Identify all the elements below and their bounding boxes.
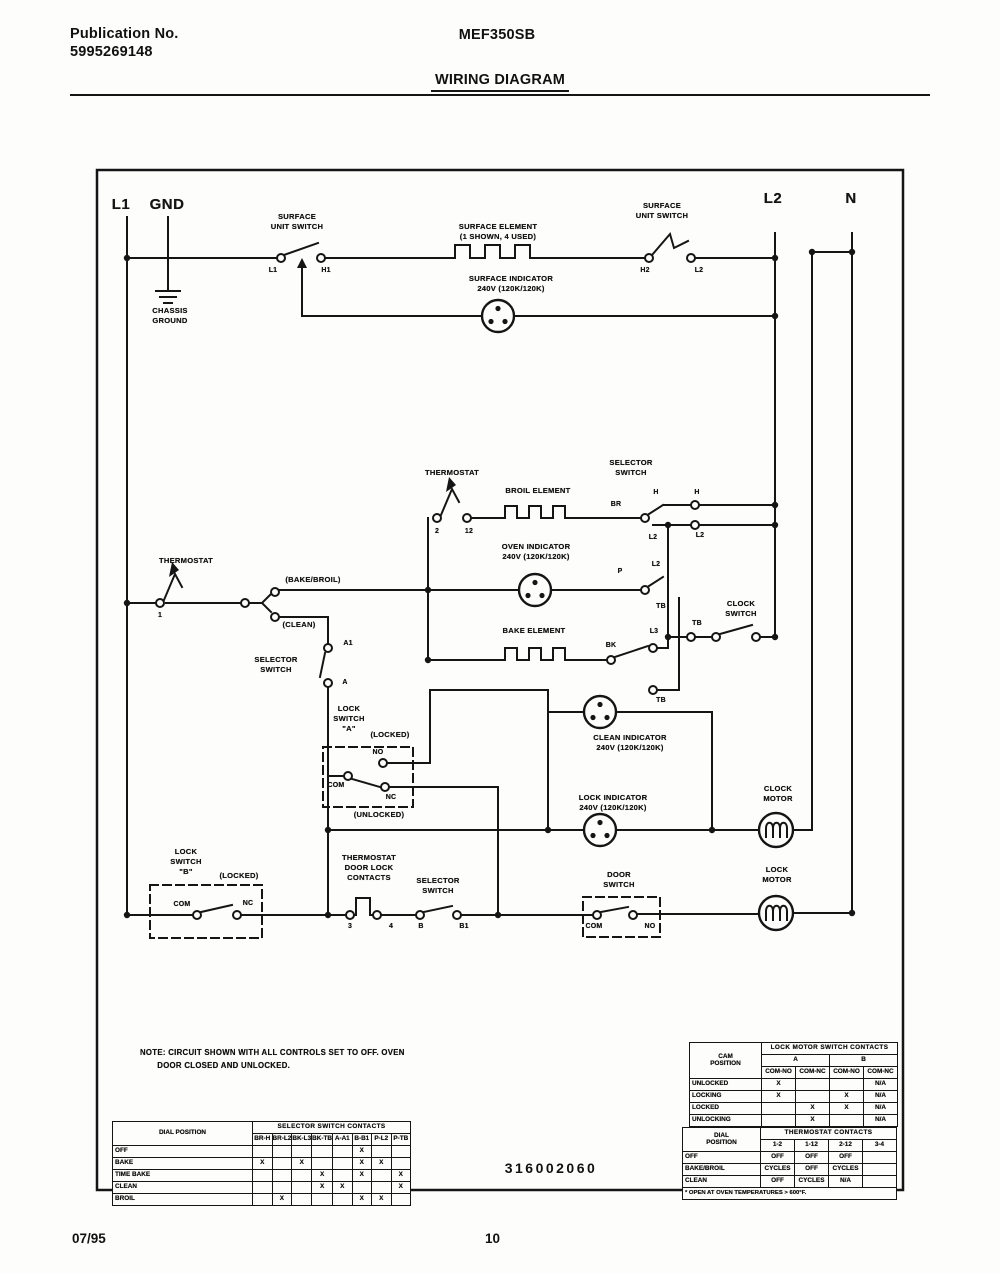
table-cell: OFF	[829, 1152, 863, 1164]
label-sw2-l2: L2	[695, 266, 704, 275]
label-gnd-bus: GND	[150, 195, 185, 215]
table-cell: BAKE/BROIL	[683, 1164, 761, 1176]
label-terminal-h-a: H	[653, 488, 658, 497]
table-cell: X	[292, 1158, 312, 1170]
table-cell: DIAL POSITION	[113, 1122, 253, 1146]
table-cell: X	[796, 1103, 830, 1115]
table-cell: N/A	[864, 1115, 898, 1127]
table-cell: CYCLES	[761, 1164, 795, 1176]
table-row: DIAL POSITIONSELECTOR SWITCH CONTACTS	[113, 1122, 411, 1134]
table-cell: X	[312, 1182, 333, 1194]
label-no-d: NO	[645, 922, 656, 931]
table-cell: X	[352, 1194, 372, 1206]
label-door-switch: DOOR SWITCH	[603, 870, 634, 890]
table-row: TIME BAKEXXX	[113, 1170, 411, 1182]
table-cell: COM-NO	[830, 1067, 864, 1079]
table-cell: N/A	[829, 1176, 863, 1188]
label-bake-element: BAKE ELEMENT	[503, 626, 566, 636]
table-cell: UNLOCKED	[690, 1079, 762, 1091]
table-cell	[863, 1176, 897, 1188]
table-cell: COM-NC	[796, 1067, 830, 1079]
table-cell: X	[352, 1146, 372, 1158]
label-surface-indicator: SURFACE INDICATOR 240V (120K/120K)	[469, 274, 553, 294]
junction-dots	[124, 249, 855, 918]
lock-indicator-lamp-icon	[584, 814, 616, 846]
table-cell	[292, 1170, 312, 1182]
label-lock-indicator: LOCK INDICATOR 240V (120K/120K)	[579, 793, 648, 813]
table-cell: * OPEN AT OVEN TEMPERATURES > 600°F.	[683, 1188, 897, 1200]
table-row: BAKE/BROILCYCLESOFFCYCLES	[683, 1164, 897, 1176]
footer-page-number: 10	[485, 1231, 500, 1246]
table-cell: X	[312, 1170, 333, 1182]
table-row: CLEANXXX	[113, 1182, 411, 1194]
clock-motor-icon	[759, 813, 793, 847]
table-cell	[333, 1170, 353, 1182]
table-cell: X	[352, 1158, 372, 1170]
table-cell: X	[272, 1194, 292, 1206]
table-cell	[312, 1158, 333, 1170]
surface-indicator-lamp-icon	[482, 300, 514, 332]
label-nc-b: NC	[243, 899, 254, 908]
selector-switch-contacts-table: DIAL POSITIONSELECTOR SWITCH CONTACTSBR-…	[112, 1121, 411, 1206]
table-cell	[391, 1158, 411, 1170]
label-surface-unit-switch-right: SURFACE UNIT SWITCH	[636, 201, 689, 221]
label-terminal-b: B	[418, 922, 423, 931]
table-cell: BAKE	[113, 1158, 253, 1170]
table-cell: X	[762, 1079, 796, 1091]
label-surface-element: SURFACE ELEMENT (1 SHOWN, 4 USED)	[459, 222, 537, 242]
label-no-a: NO	[373, 748, 384, 757]
label-thermostat-door-lock: THERMOSTAT DOOR LOCK CONTACTS	[342, 853, 396, 883]
label-n-bus: N	[845, 189, 856, 209]
label-terminal-br: BR	[611, 500, 622, 509]
table-cell	[796, 1091, 830, 1103]
table-cell: X	[372, 1194, 392, 1206]
table-cell	[292, 1182, 312, 1194]
label-terminal-12: 12	[465, 527, 473, 536]
table-cell: CYCLES	[795, 1176, 829, 1188]
table-cell: UNLOCKING	[690, 1115, 762, 1127]
table-cell	[391, 1146, 411, 1158]
manual-page: Publication No. 5995269148 MEF350SB WIRI…	[0, 0, 1000, 1273]
table-row: CAM POSITIONLOCK MOTOR SWITCH CONTACTS	[690, 1043, 898, 1055]
table-cell	[333, 1146, 353, 1158]
table-cell: TIME BAKE	[113, 1170, 253, 1182]
contacts-table: CAM POSITIONLOCK MOTOR SWITCH CONTACTSAB…	[689, 1042, 898, 1127]
table-cell: P-TB	[391, 1134, 411, 1146]
label-chassis-ground: CHASSIS GROUND	[152, 306, 188, 326]
clean-indicator-lamp-icon	[584, 696, 616, 728]
table-cell: BR-L2	[272, 1134, 292, 1146]
table-cell	[333, 1158, 353, 1170]
table-cell: X	[253, 1158, 273, 1170]
table-row: BAKEXXXX	[113, 1158, 411, 1170]
table-cell: BK-TB	[312, 1134, 333, 1146]
table-cell: LOCKING	[690, 1091, 762, 1103]
label-surface-unit-switch-left: SURFACE UNIT SWITCH	[271, 212, 324, 232]
table-cell: P-L2	[372, 1134, 392, 1146]
table-cell: X	[762, 1091, 796, 1103]
table-cell: SELECTOR SWITCH CONTACTS	[253, 1122, 411, 1134]
table-cell: LOCKED	[690, 1103, 762, 1115]
table-cell	[796, 1079, 830, 1091]
table-row: OFFX	[113, 1146, 411, 1158]
table-cell	[272, 1146, 292, 1158]
table-cell	[372, 1170, 392, 1182]
table-cell: X	[796, 1115, 830, 1127]
table-cell: OFF	[113, 1146, 253, 1158]
label-com-b: COM	[174, 900, 191, 909]
label-lock-switch-a: LOCK SWITCH "A"	[333, 704, 364, 734]
label-broil-element: BROIL ELEMENT	[505, 486, 570, 496]
label-oven-indicator: OVEN INDICATOR 240V (120K/120K)	[502, 542, 571, 562]
table-cell	[333, 1194, 353, 1206]
table-cell: 1-12	[795, 1140, 829, 1152]
label-clock-motor: CLOCK MOTOR	[763, 784, 792, 804]
table-cell: X	[391, 1182, 411, 1194]
label-terminal-l2-b: L2	[696, 531, 705, 540]
label-lock-switch-b: LOCK SWITCH "B"	[170, 847, 201, 877]
label-selector-switch-upper: SELECTOR SWITCH	[609, 458, 652, 478]
table-cell	[253, 1146, 273, 1158]
table-row: DIAL POSITIONTHERMOSTAT CONTACTS	[683, 1128, 897, 1140]
label-terminal-l2-a: L2	[649, 533, 658, 542]
label-selector-switch-left: SELECTOR SWITCH	[254, 655, 297, 675]
table-row: BROILXXX	[113, 1194, 411, 1206]
label-sw1-h1: H1	[321, 266, 330, 275]
table-cell: DIAL POSITION	[683, 1128, 761, 1152]
label-terminal-tb1: TB	[656, 602, 666, 611]
table-cell: N/A	[864, 1103, 898, 1115]
label-com-a: COM	[328, 781, 345, 790]
label-terminal-a1: A1	[343, 639, 352, 648]
table-cell: OFF	[761, 1176, 795, 1188]
table-cell: CLEAN	[683, 1176, 761, 1188]
table-cell: A-A1	[333, 1134, 353, 1146]
table-cell	[830, 1115, 864, 1127]
label-terminal-h-b: H	[694, 488, 699, 497]
label-terminal-p: P	[618, 567, 623, 576]
table-cell: X	[830, 1103, 864, 1115]
table-cell: 1-2	[761, 1140, 795, 1152]
label-terminal-b1: B1	[459, 922, 468, 931]
table-cell: COM-NO	[762, 1067, 796, 1079]
table-cell	[292, 1146, 312, 1158]
table-cell: COM-NC	[864, 1067, 898, 1079]
table-cell	[272, 1158, 292, 1170]
table-cell	[762, 1115, 796, 1127]
table-cell: N/A	[864, 1091, 898, 1103]
table-cell	[830, 1079, 864, 1091]
table-row: LOCKEDXXN/A	[690, 1103, 898, 1115]
table-cell	[272, 1182, 292, 1194]
table-cell: BROIL	[113, 1194, 253, 1206]
table-cell	[312, 1146, 333, 1158]
table-cell: 2-12	[829, 1140, 863, 1152]
table-cell: B	[830, 1055, 898, 1067]
table-cell	[272, 1170, 292, 1182]
label-lock-motor: LOCK MOTOR	[762, 865, 791, 885]
label-sw2-h2: H2	[640, 266, 649, 275]
table-cell	[372, 1146, 392, 1158]
label-l1-bus: L1	[112, 195, 131, 215]
table-cell: 3-4	[863, 1140, 897, 1152]
label-clean-indicator: CLEAN INDICATOR 240V (120K/120K)	[593, 733, 667, 753]
part-number: 316002060	[505, 1160, 598, 1176]
label-locked-b: (LOCKED)	[219, 871, 258, 881]
table-row: UNLOCKINGXN/A	[690, 1115, 898, 1127]
footer-date: 07/95	[72, 1231, 106, 1246]
table-cell: X	[333, 1182, 353, 1194]
table-row: CLEANOFFCYCLESN/A	[683, 1176, 897, 1188]
table-cell: A	[762, 1055, 830, 1067]
table-cell: CAM POSITION	[690, 1043, 762, 1079]
table-cell: CLEAN	[113, 1182, 253, 1194]
table-cell: OFF	[761, 1152, 795, 1164]
label-terminal-tb2: TB	[656, 696, 666, 705]
table-cell	[863, 1152, 897, 1164]
table-row: OFFOFFOFFOFF	[683, 1152, 897, 1164]
label-clean: (CLEAN)	[283, 620, 316, 630]
table-row: LOCKINGXXN/A	[690, 1091, 898, 1103]
label-terminal-bk: BK	[606, 641, 617, 650]
lock-motor-switch-contacts-table: CAM POSITIONLOCK MOTOR SWITCH CONTACTSAB…	[689, 1042, 898, 1127]
label-sw1-l1: L1	[269, 266, 278, 275]
table-cell	[762, 1103, 796, 1115]
label-thermostat-left: THERMOSTAT	[159, 556, 213, 566]
label-l2-bus: L2	[764, 189, 783, 209]
label-terminal-l2-c: L2	[652, 560, 661, 569]
table-cell: B-B1	[352, 1134, 372, 1146]
table-cell: X	[391, 1170, 411, 1182]
table-cell	[352, 1182, 372, 1194]
table-cell	[312, 1194, 333, 1206]
label-unlocked-a: (UNLOCKED)	[354, 810, 405, 820]
table-row: * OPEN AT OVEN TEMPERATURES > 600°F.	[683, 1188, 897, 1200]
label-com-d: COM	[586, 922, 603, 931]
terminals	[156, 254, 760, 919]
table-cell	[292, 1194, 312, 1206]
table-cell: OFF	[683, 1152, 761, 1164]
diagram-note: NOTE: CIRCUIT SHOWN WITH ALL CONTROLS SE…	[140, 1046, 405, 1073]
label-nc-a: NC	[386, 793, 397, 802]
table-cell	[863, 1164, 897, 1176]
label-terminal-a: A	[342, 678, 347, 687]
lock-motor-icon	[759, 896, 793, 930]
table-cell: BK-L3	[292, 1134, 312, 1146]
table-cell: X	[372, 1158, 392, 1170]
table-cell: X	[830, 1091, 864, 1103]
table-cell: N/A	[864, 1079, 898, 1091]
table-row: UNLOCKEDXN/A	[690, 1079, 898, 1091]
table-cell	[253, 1182, 273, 1194]
label-terminal-tb3: TB	[692, 619, 702, 628]
label-clock-switch: CLOCK SWITCH	[725, 599, 756, 619]
label-terminal-2: 2	[435, 527, 439, 536]
label-terminal-1: 1	[158, 611, 162, 620]
contacts-table: DIAL POSITIONSELECTOR SWITCH CONTACTSBR-…	[112, 1121, 411, 1206]
table-cell	[253, 1194, 273, 1206]
label-terminal-l3: L3	[650, 627, 659, 636]
contact-flags	[169, 258, 456, 577]
table-cell: BR-H	[253, 1134, 273, 1146]
table-cell: OFF	[795, 1164, 829, 1176]
label-terminal-3: 3	[348, 922, 352, 931]
label-selector-switch-bottom: SELECTOR SWITCH	[416, 876, 459, 896]
table-cell	[253, 1170, 273, 1182]
table-cell: OFF	[795, 1152, 829, 1164]
table-cell: THERMOSTAT CONTACTS	[761, 1128, 897, 1140]
table-cell: CYCLES	[829, 1164, 863, 1176]
label-bake-broil: (BAKE/BROIL)	[285, 575, 340, 585]
label-locked-a: (LOCKED)	[370, 730, 409, 740]
oven-indicator-lamp-icon	[519, 574, 551, 606]
table-cell: X	[352, 1170, 372, 1182]
contacts-table: DIAL POSITIONTHERMOSTAT CONTACTS1-21-122…	[682, 1127, 897, 1200]
thermostat-contacts-table: DIAL POSITIONTHERMOSTAT CONTACTS1-21-122…	[682, 1127, 897, 1200]
table-cell: LOCK MOTOR SWITCH CONTACTS	[762, 1043, 898, 1055]
table-cell	[372, 1182, 392, 1194]
label-thermostat-upper: THERMOSTAT	[425, 468, 479, 478]
label-terminal-4: 4	[389, 922, 393, 931]
table-cell	[391, 1194, 411, 1206]
